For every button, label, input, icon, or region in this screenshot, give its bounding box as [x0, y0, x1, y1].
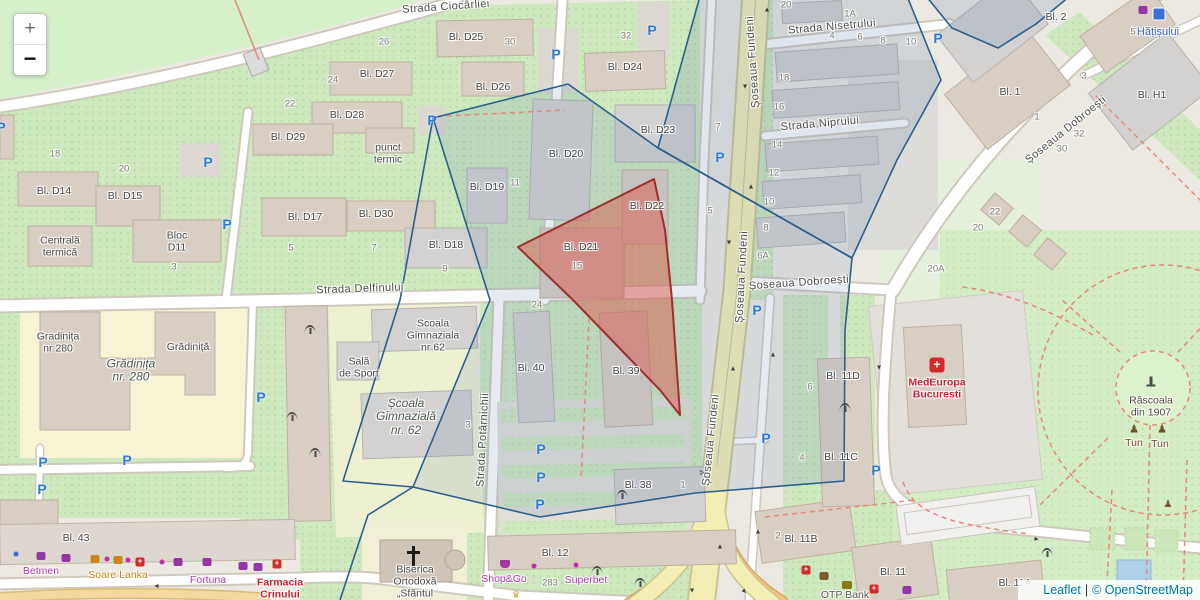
block-label: Bl. 40 [518, 363, 545, 375]
block-label: Bl. 43 [63, 533, 90, 545]
block-label: Bloc D11 [167, 230, 187, 254]
poi-otp-bank: OTP Bank [821, 590, 869, 600]
zoom-in-button[interactable]: + [14, 14, 46, 45]
sq-orange-icon [91, 555, 100, 563]
zoom-out-button[interactable]: − [14, 45, 46, 75]
poi-biserica-ortodoxa: Biserica Ortodoxă „Sfântul [393, 564, 436, 599]
arrow-icon: ▲ [726, 239, 733, 246]
sq-purple-icon [62, 554, 71, 562]
block-label: Bl. 11 [880, 567, 906, 579]
sq-olive-icon [842, 581, 852, 589]
dot-blue-icon [14, 552, 19, 557]
street-soseaua-fundeni: Șoseaua Fundeni [744, 16, 763, 109]
arrow-icon: ▲ [764, 7, 771, 14]
parking-icon: P [203, 155, 212, 169]
housenumber-label: 10 [906, 38, 917, 49]
antenna-icon [635, 578, 646, 588]
housenumber-label: 16 [774, 103, 785, 114]
housenumber-label: 283 [542, 579, 558, 590]
arrow-icon: ▲ [876, 364, 883, 371]
block-label: Bl. 2 [1045, 12, 1066, 24]
crown-icon: ♛ [512, 591, 520, 600]
sq-orange-icon [114, 556, 123, 564]
antenna-icon [617, 490, 628, 500]
parking-icon: P [752, 303, 761, 317]
dot-mag-icon [574, 563, 579, 568]
housenumber-label: 1 [680, 481, 685, 492]
housenumber-label: 8 [880, 37, 885, 48]
sq-purple-icon [203, 558, 212, 566]
block-label: Bl. D23 [641, 125, 675, 137]
block-label: Bl. D25 [449, 32, 483, 44]
housenumber-label: 22 [285, 100, 296, 111]
dot-mag-icon [532, 564, 537, 569]
housenumber-label: 5 [288, 244, 293, 255]
statue-icon: ♟ [1164, 500, 1173, 510]
block-label: Bl. D15 [108, 191, 142, 203]
block-label: Bl. D19 [470, 182, 504, 194]
map-canvas[interactable]: PPPPPPPPPPPPPPPPPP▲▲▲▲▲▲▲▲▲▲▲▲▲+++++♟♟♟♛… [0, 0, 1200, 600]
housenumber-label: 3 [1081, 72, 1086, 83]
street-strada-potarnichii: Strada Potârnichii [474, 393, 491, 488]
parking-icon: P [256, 390, 265, 404]
block-label: Bl. 11C [824, 452, 858, 464]
poi-tun: Tun [1151, 439, 1169, 451]
housenumber-label: 24 [328, 76, 339, 87]
arrow-icon: ▲ [742, 83, 749, 90]
street-soseaua-dobroesti: Șoseaua Dobroești [749, 273, 850, 292]
housenumber-label: 32 [621, 32, 632, 43]
leaflet-link[interactable]: Leaflet [1043, 583, 1081, 597]
block-label: Bl. 12 [542, 548, 569, 560]
cross-red-icon: + [136, 558, 145, 567]
antenna-icon [840, 403, 851, 413]
block-label: Bl. D26 [476, 82, 510, 94]
housenumber-label: 7 [715, 123, 720, 134]
block-label: Grădiniță [167, 342, 210, 354]
housenumber-label: 2 [775, 532, 780, 543]
housenumber-label: 5 [707, 207, 712, 218]
dot-mag-icon [126, 558, 131, 563]
osm-link[interactable]: © OpenStreetMap [1092, 583, 1193, 597]
street-soseaua-dobroesti: Șoseaua Dobroești [1023, 94, 1109, 167]
block-label: Bl. D27 [360, 69, 394, 81]
church-cross-icon [406, 546, 420, 566]
housenumber-label: 20A [928, 265, 945, 276]
parking-icon: P [871, 463, 880, 477]
parking-icon: P [933, 31, 942, 45]
block-label: Bl. D22 [630, 201, 664, 213]
zoom-control: + − [13, 13, 47, 76]
housenumber-label: 6 [807, 383, 812, 394]
housenumber-label: 4 [799, 454, 804, 465]
block-label: Bl. D14 [37, 186, 71, 198]
block-label: Bl. D21 [564, 242, 598, 254]
parking-icon: P [761, 431, 770, 445]
housenumber-label: 18 [50, 150, 61, 161]
arrow-icon: ▲ [755, 529, 762, 536]
block-label: Bl. D29 [271, 132, 305, 144]
block-label: Bl. 11B [784, 534, 817, 546]
housenumber-label: 30 [1057, 145, 1068, 156]
sq-purple-icon [174, 558, 183, 566]
parking-icon: P [536, 442, 545, 456]
attribution-separator: | [1085, 583, 1088, 597]
street-strada-nisetrului: Strada Nisetrului [788, 17, 877, 37]
parking-icon: P [222, 217, 231, 231]
block-label: Scoala Gimnaziala nr 62 [407, 318, 460, 353]
parking-icon: P [427, 113, 436, 127]
housenumber-label: 24 [532, 301, 543, 312]
housenumber-label: 9 [442, 265, 447, 276]
housenumber-label: 14 [772, 141, 783, 152]
parking-icon: P [37, 482, 46, 496]
transit-icon [1153, 8, 1166, 21]
housenumber-label: 20 [119, 165, 130, 176]
hospital-icon: + [930, 358, 945, 373]
arrow-icon: ▲ [739, 586, 749, 596]
street-strada-delfinului: Strada Delfinului [316, 281, 404, 296]
street-strada-ciocarliei: Strada Ciocârliei [402, 0, 490, 16]
housenumber-label: 11 [510, 179, 520, 190]
parking-icon: P [535, 497, 544, 511]
parking-icon: P [122, 453, 131, 467]
arrow-icon: ▲ [1032, 535, 1040, 543]
antenna-icon [592, 566, 603, 576]
cross-red-icon: + [273, 560, 282, 569]
block-label: Bl. D30 [359, 209, 393, 221]
block-label: Bl. 11D [826, 371, 860, 383]
sq-purple-icon [254, 563, 263, 571]
housenumber-label: 10 [764, 198, 775, 209]
cross-red-icon: + [870, 585, 879, 594]
arrow-icon: ▲ [689, 587, 696, 594]
arrow-icon: ▲ [748, 184, 755, 191]
housenumber-label: 6A [757, 252, 769, 263]
leaflet-flag-icon [1024, 585, 1039, 596]
housenumber-label: 7 [371, 244, 376, 255]
poi-tun: Tun [1125, 438, 1143, 450]
sq-brown-icon [820, 572, 829, 580]
tun-icon: ♟ [1129, 425, 1139, 436]
block-label: Bl. D17 [288, 212, 322, 224]
housenumber-label: 22 [990, 208, 1001, 219]
housenumber-label: 4 [829, 32, 834, 43]
antenna-icon [287, 412, 298, 422]
poi-shop-and-go: Shop&Go [481, 574, 527, 586]
basket-icon [500, 560, 510, 568]
poi-rascoala-din-1907: Râscoala din 1907 [1129, 395, 1173, 419]
housenumber-label: 20 [973, 224, 984, 235]
housenumber-label: 3 [465, 421, 470, 432]
street-soseaua-fundeni: Șoseaua Fundeni [700, 393, 722, 486]
block-label: Bl. D24 [608, 62, 642, 74]
arrow-icon: ▲ [717, 544, 724, 551]
housenumber-label: 20 [781, 1, 792, 12]
block-label: Bl. H1 [1138, 90, 1167, 102]
housenumber-label: 18 [779, 74, 790, 85]
housenumber-label: 15 [572, 262, 583, 273]
housenumber-label: 12 [769, 169, 780, 180]
antenna-icon [310, 448, 321, 458]
parking-icon: P [647, 23, 656, 37]
arrow-icon: ▲ [154, 583, 161, 590]
sq-purple-icon [1139, 6, 1148, 14]
housenumber-label: 1 [1034, 113, 1039, 124]
housenumber-label: 6 [857, 33, 862, 44]
block-label: Bl. 1 [999, 87, 1020, 99]
sq-purple-icon [239, 562, 248, 570]
dot-mag-icon [160, 560, 165, 565]
monument-icon [1150, 377, 1153, 386]
poi-farmacia-crinului: Farmacia Crinului [257, 577, 303, 600]
block-label: Gradinița nr 280 [37, 331, 80, 355]
poi-soare-lanka: Soare Lanka [88, 570, 148, 582]
housenumber-label: 32 [1074, 130, 1085, 141]
block-label: Bl. 38 [625, 480, 652, 492]
block-label: Bl. 39 [613, 366, 640, 378]
block-label: punct termic [374, 142, 403, 166]
arrow-icon: ▲ [730, 366, 737, 373]
antenna-icon [305, 325, 316, 335]
tun-icon: ♟ [1157, 425, 1167, 436]
poi-fortuna: Fortuna [190, 575, 226, 587]
housenumber-label: 1A [844, 10, 856, 21]
block-label: Școala Gimnazială nr. 62 [376, 397, 436, 437]
housenumber-label: 8 [763, 224, 768, 235]
attribution-bar: Leaflet | © OpenStreetMap [1018, 580, 1200, 600]
poi-betmen: Betmen [23, 566, 59, 578]
parking-icon: P [0, 120, 6, 134]
housenumber-label: 26 [379, 38, 390, 49]
block-label: Bl. D28 [330, 110, 364, 122]
street-soseaua-fundeni: Șoseaua Fundeni [733, 231, 750, 324]
housenumber-label: 5 [1130, 28, 1135, 39]
poi-medeuropa-bucuresti: MedEuropa Bucuresti [908, 377, 965, 401]
sq-purple-icon [37, 552, 46, 560]
block-label: Centrală termică [40, 235, 80, 259]
cross-red-icon: + [802, 566, 811, 575]
block-label: Bl. D18 [429, 240, 463, 252]
poi-hatisului: Hățișului [1137, 26, 1179, 38]
housenumber-label: 30 [505, 38, 516, 49]
block-label: Bl. D20 [549, 149, 583, 161]
street-strada-niprului: Strada Niprului [780, 114, 860, 133]
arrow-icon: ▲ [770, 352, 777, 359]
parking-icon: P [715, 150, 724, 164]
poi-superbet: Superbet [565, 575, 608, 587]
antenna-icon [1042, 548, 1053, 558]
parking-icon: P [38, 455, 47, 469]
parking-icon: P [551, 47, 560, 61]
housenumber-label: 3 [171, 263, 176, 274]
dot-mag-icon [105, 557, 110, 562]
block-label: Grădinița nr. 280 [107, 358, 156, 385]
scissors-icon: ✂ [699, 469, 708, 480]
block-label: Sală de Sport [339, 356, 379, 380]
sq-purple-icon [903, 586, 912, 594]
parking-icon: P [536, 470, 545, 484]
